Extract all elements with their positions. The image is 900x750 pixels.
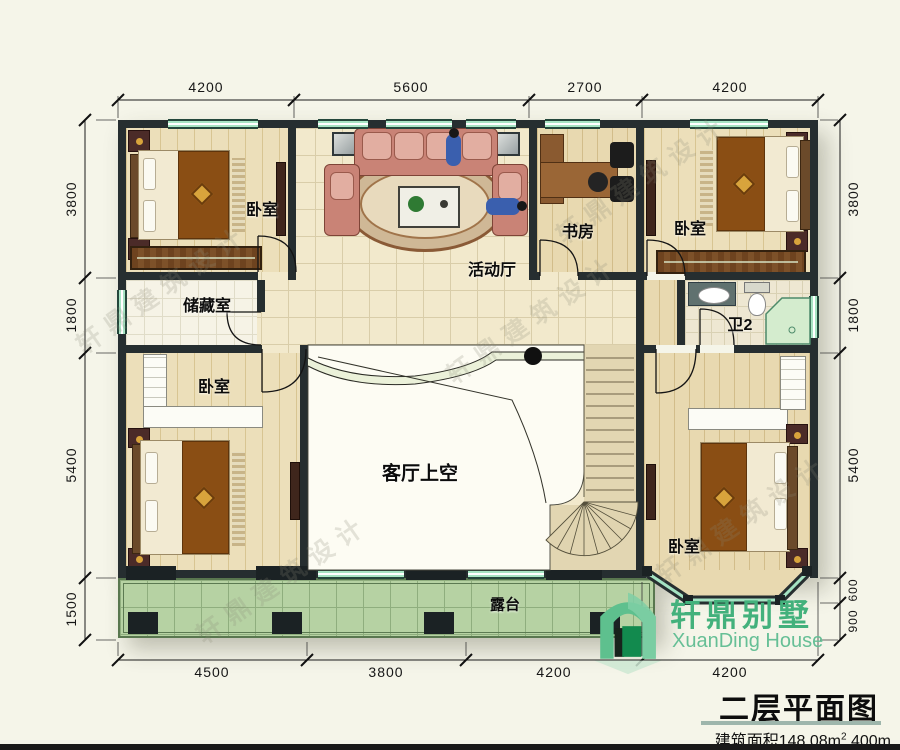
title-block: 二层平面图 建筑面积148.08m2 400m [668, 684, 893, 746]
room-label-bath2: 卫2 [728, 311, 753, 335]
dim-bottom-2: 3800 [368, 664, 403, 680]
dim-right-2: 1800 [845, 297, 861, 332]
title-underline [701, 721, 881, 725]
room-label-activity-hall: 活动厅 [468, 256, 516, 280]
room-label-bedroom-br: 卧室 [668, 533, 700, 557]
dim-left-3: 5400 [63, 447, 79, 482]
dim-bottom-1: 4500 [194, 664, 229, 680]
room-label-living-void: 客厅上空 [382, 459, 458, 486]
dim-right-1: 3800 [845, 181, 861, 216]
logo-name-en: XuanDing House [672, 630, 823, 653]
room-label-bedroom-bl: 卧室 [198, 373, 230, 397]
floor-plan-sheet: 轩鼎建筑设计 轩鼎建筑设计 轩鼎建筑设计 轩鼎建筑设计 轩鼎建筑设计 卧室 活动… [0, 0, 900, 750]
dim-left-2: 1800 [63, 297, 79, 332]
logo-house-icon [592, 584, 664, 676]
logo: 轩鼎别墅 XuanDing House [592, 582, 832, 674]
room-label-study: 书房 [562, 218, 594, 242]
dim-bottom-3: 4200 [536, 664, 571, 680]
room-label-terrace: 露台 [490, 594, 520, 615]
dim-left-4: 1500 [63, 591, 79, 626]
dim-top-1: 4200 [188, 79, 223, 95]
dim-right-3: 5400 [845, 447, 861, 482]
dim-left-1: 3800 [63, 181, 79, 216]
room-label-bedroom-tl: 卧室 [246, 196, 278, 220]
logo-name-cn: 轩鼎别墅 [670, 590, 814, 635]
bottom-edge-bar [0, 744, 900, 750]
room-label-bedroom-tr: 卧室 [674, 215, 706, 239]
dim-top-3: 2700 [567, 79, 602, 95]
dim-top-4: 4200 [712, 79, 747, 95]
room-label-storage: 储藏室 [183, 292, 231, 316]
dim-right-5: 900 [846, 609, 860, 632]
dim-right-4: 600 [846, 578, 860, 601]
dim-top-2: 5600 [393, 79, 428, 95]
